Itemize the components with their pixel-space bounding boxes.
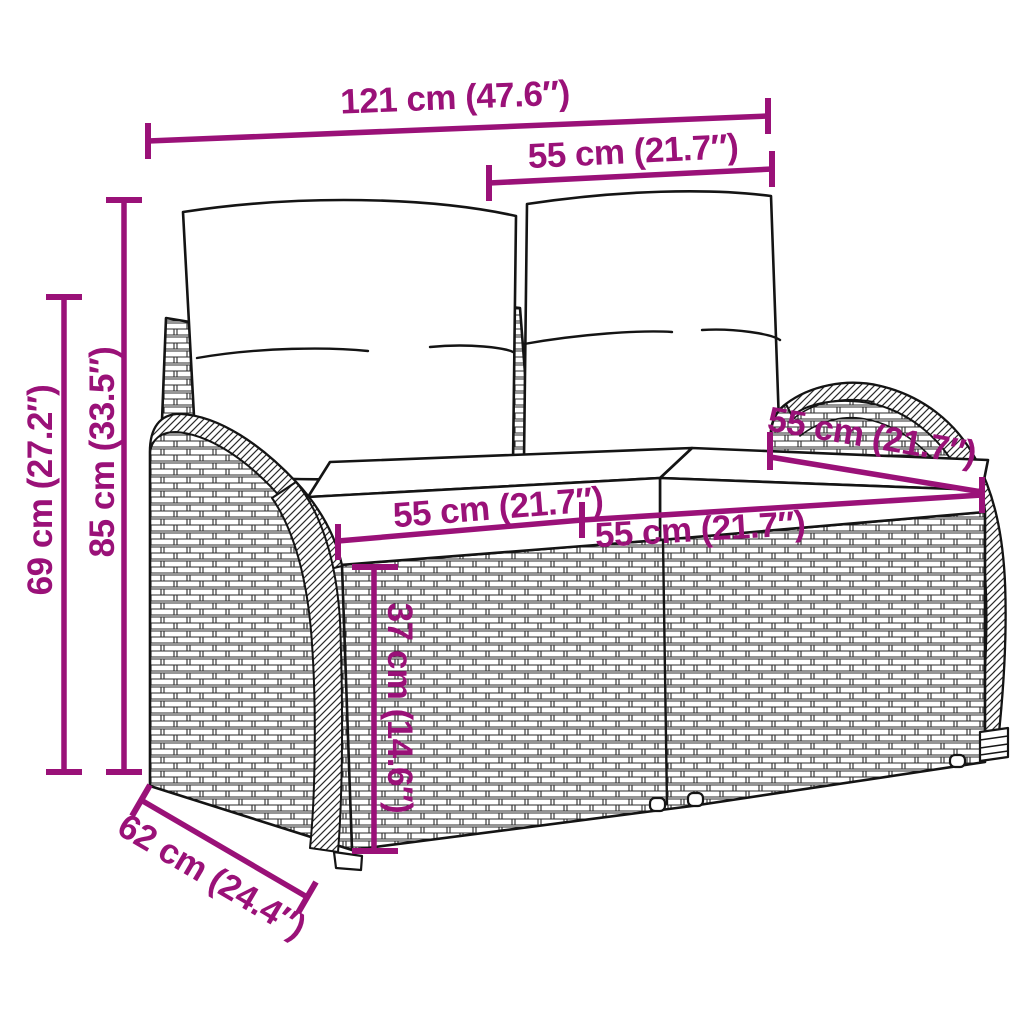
diagram-canvas: 121 cm (47.6″) 55 cm (21.7″) 85 cm (33.5… [0, 0, 1024, 1024]
sofa-foot-front-left [334, 852, 362, 870]
dim-label-backrest-section-width: 55 cm (21.7″) [527, 127, 739, 176]
product-dimension-diagram: 121 cm (47.6″) 55 cm (21.7″) 85 cm (33.5… [0, 0, 1024, 1024]
sofa-foot-middle-left [650, 798, 665, 811]
dim-overall-height: 85 cm (33.5″) [83, 200, 142, 772]
back-cushion-right [524, 191, 780, 466]
dim-label-overall-width: 121 cm (47.6″) [340, 73, 571, 121]
dim-label-backrest-height: 69 cm (27.2″) [21, 385, 60, 596]
dim-backrest-height: 69 cm (27.2″) [21, 297, 82, 772]
sofa-foot-middle-right [688, 793, 703, 806]
dim-backrest-section-width: 55 cm (21.7″) [489, 127, 772, 201]
dim-label-seat-height: 37 cm (14.6″) [380, 603, 419, 814]
dim-label-overall-height: 85 cm (33.5″) [83, 347, 122, 558]
sofa-foot-front-right [950, 755, 965, 767]
